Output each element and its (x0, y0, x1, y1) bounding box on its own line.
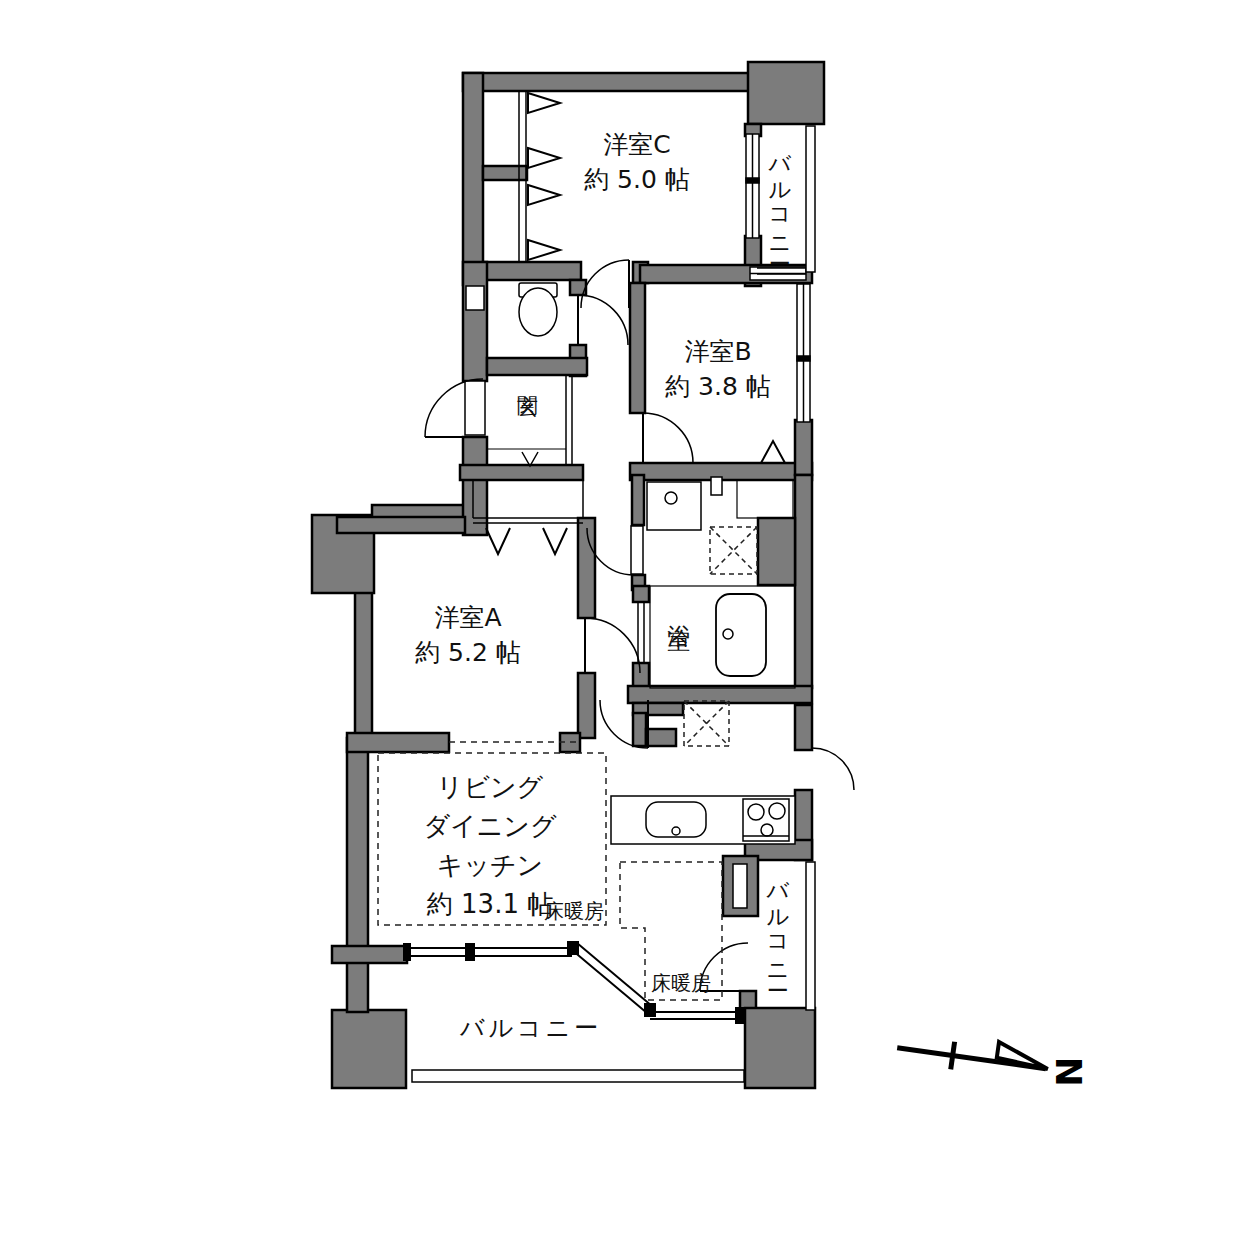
door-entrance-front (425, 379, 485, 437)
kitchen-counter (611, 796, 795, 844)
refrigerator-space (684, 701, 729, 746)
north-arrow-icon: N (895, 1028, 1093, 1092)
room-size: 約 5.0 帖 (537, 162, 737, 197)
door-western-b (643, 413, 693, 463)
closet-divider (483, 166, 527, 180)
washbasin-icon (647, 482, 701, 530)
wall-pillar-bottom-right (745, 1008, 815, 1088)
door-kitchen-service (812, 748, 854, 790)
balcony-bottom-label: バルコニー (430, 1012, 632, 1046)
door-western-c (581, 260, 629, 308)
toilet-niche (466, 286, 484, 310)
storage-outline (737, 480, 793, 518)
stove-icon (743, 799, 789, 841)
wall-block-top-right (748, 62, 824, 124)
railing-balcony-right (806, 862, 815, 1010)
wall-pillar-bottom-left (332, 1010, 406, 1088)
washing-machine-space (710, 527, 757, 574)
bathroom-label: 浴室 (663, 606, 695, 676)
western-a-label: 洋室A 約 5.2 帖 (368, 600, 568, 670)
room-name: 洋室A (368, 600, 568, 635)
window-balcony-slot (733, 864, 747, 908)
washroom-niche (711, 477, 722, 495)
room-name: 洋室B (618, 334, 818, 369)
railing-balcony-top (806, 126, 815, 272)
room-name: 洋室C (537, 127, 737, 162)
floor-heating-dining-label: 床暖房 (629, 969, 733, 997)
western-b-label: 洋室B 約 3.8 帖 (618, 334, 818, 404)
entrance-label: 玄関 (512, 378, 541, 450)
railing-balcony-bottom (412, 1070, 744, 1082)
door-bathroom-slider (638, 602, 644, 663)
room-size: 約 3.8 帖 (618, 369, 818, 404)
floorplan-page: N 洋室C 約 5.0 帖 洋室B 約 3.8 帖 洋室A 約 5.2 帖 リビ… (0, 0, 1252, 1252)
balcony-top-label: バルコニー (764, 139, 795, 267)
floor-heating-living-label: 床暖房 (516, 897, 604, 925)
room-size: 約 5.2 帖 (368, 635, 568, 670)
dashed-areas (378, 527, 757, 1000)
north-label: N (1048, 1057, 1089, 1087)
bathtub-icon (716, 594, 766, 676)
western-c-label: 洋室C 約 5.0 帖 (537, 127, 737, 197)
balcony-right-label: バルコニー (762, 866, 793, 1008)
toilet-icon (519, 283, 557, 336)
room-name: リビング ダイニング キッチン (378, 768, 602, 885)
